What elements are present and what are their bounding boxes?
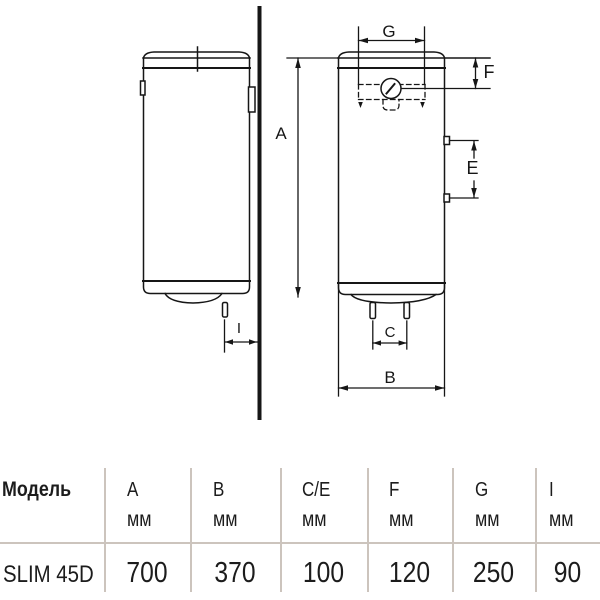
water-heater-dimensions-page: A I: [0, 0, 600, 600]
mounting-bracket-right: [249, 87, 256, 112]
dimension-g: G: [359, 22, 425, 84]
heater-top-cap: [144, 52, 250, 58]
dimension-label-e: E: [466, 158, 478, 178]
dimension-a: A: [275, 58, 339, 297]
dimension-label-a: A: [275, 124, 287, 143]
model-name: SLIM 45D: [3, 561, 94, 589]
col-unit-ce: мм: [302, 508, 327, 532]
col-header-a: A: [127, 479, 138, 502]
value-a: 700: [110, 557, 183, 590]
heater-bottom-rim-front: [339, 283, 445, 295]
col-unit-g: мм: [475, 508, 500, 532]
col-header-i: I: [549, 479, 554, 502]
table-divider: [535, 468, 537, 592]
col-header-ce: C/E: [302, 479, 330, 502]
technical-drawing: A I: [0, 0, 600, 455]
table-divider: [190, 468, 192, 592]
side-view-drawing: [141, 8, 260, 418]
heater-bottom-dome: [165, 294, 222, 304]
col-header-f: F: [389, 479, 399, 502]
dimension-label-g: G: [382, 22, 395, 41]
value-b: 370: [197, 557, 274, 590]
table-divider: [367, 468, 369, 592]
col-header-b: B: [213, 479, 224, 502]
col-unit-f: мм: [389, 508, 414, 532]
value-i: 90: [540, 557, 595, 590]
dimension-label-f: F: [484, 62, 495, 82]
col-unit-b: мм: [213, 508, 238, 532]
thermometer-gauge-icon: [381, 79, 401, 99]
wall-hook-upper: [444, 137, 450, 145]
col-header-g: G: [475, 479, 488, 502]
value-ce: 100: [287, 557, 361, 590]
col-unit-i: мм: [549, 508, 574, 532]
front-view-drawing: [338, 52, 490, 319]
value-g: 250: [458, 557, 529, 590]
table-divider: [452, 468, 454, 592]
model-column-header: Модель: [2, 478, 71, 502]
dimension-label-c: C: [385, 324, 396, 341]
dimension-e: E: [450, 141, 479, 199]
dimension-i: I: [225, 320, 258, 352]
inlet-pipe: [370, 303, 376, 319]
drain-pipe: [223, 303, 228, 318]
table-header-separator: [0, 542, 600, 544]
value-f: 120: [373, 557, 445, 590]
dimension-label-b: B: [384, 368, 395, 387]
outlet-pipe: [404, 303, 410, 319]
heater-bottom-dome-front: [351, 295, 436, 304]
bracket-foot-left: [358, 102, 363, 108]
heater-bottom-rim: [144, 281, 250, 294]
bracket-foot-right: [420, 102, 425, 108]
dimension-c: C: [373, 321, 407, 349]
table-divider: [280, 468, 282, 592]
wall-hook-lower: [444, 194, 450, 202]
heater-top-cap-front: [339, 52, 445, 58]
dimension-label-i: I: [237, 320, 241, 337]
mounting-bracket-left: [141, 81, 146, 95]
table-divider: [104, 468, 106, 592]
col-unit-a: мм: [127, 508, 152, 532]
